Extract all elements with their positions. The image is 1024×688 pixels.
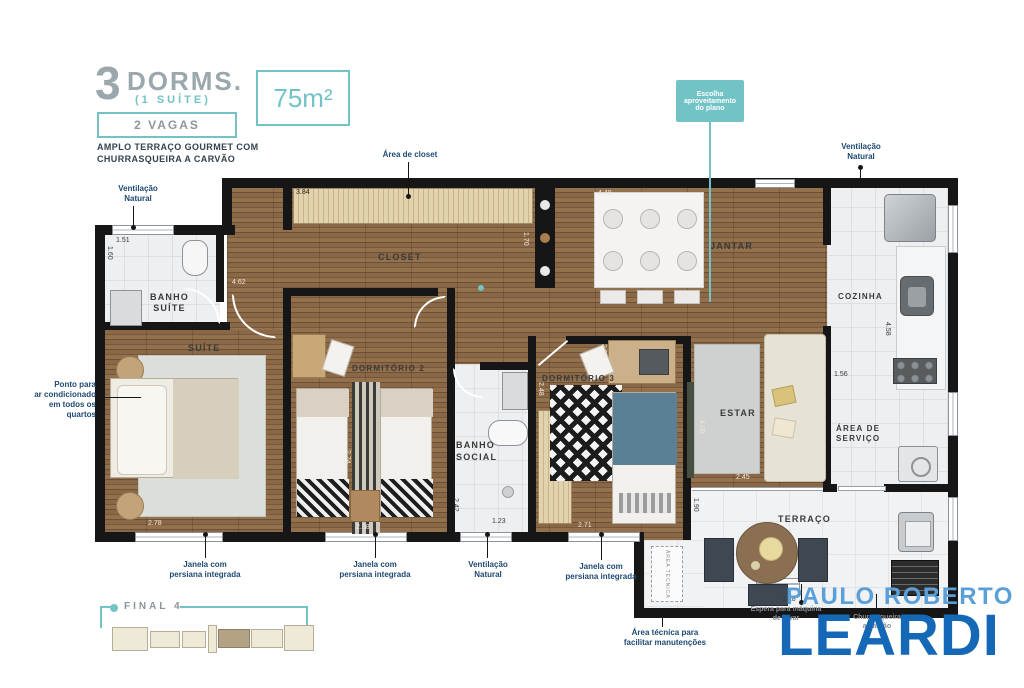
sofa-pillow-1 xyxy=(771,385,796,407)
ann-ventilacao-3-line xyxy=(487,537,488,558)
label-area-servico: ÁREA DE SERVIÇO xyxy=(836,424,880,445)
dim-banho-suite-h: 1.60 xyxy=(106,246,113,260)
ann-ventilacao-2-line xyxy=(860,170,861,184)
ann-ventilacao-1-l1: Ventilação xyxy=(118,184,158,193)
ann-janela-3: Janela com persiana integrada xyxy=(556,562,646,582)
terraco-table-plate xyxy=(759,537,783,561)
wall-banho-social-top xyxy=(480,362,533,370)
dim-dorm2-w: 2.38 xyxy=(356,524,370,531)
label-area-servico-l1: ÁREA DE xyxy=(836,424,880,433)
dorm3-bed-foot xyxy=(619,493,671,513)
window-right-3 xyxy=(948,497,958,541)
area-tecnica-box-label: ÁREA TÉCNICA xyxy=(664,550,670,599)
wall-jog xyxy=(222,178,232,235)
terraco-table-cup xyxy=(751,561,760,570)
header-subtitle-1: AMPLO TERRAÇO GOURMET COM xyxy=(97,142,259,152)
washing-machine-door xyxy=(911,457,931,477)
label-suite: SUÍTE xyxy=(188,343,221,353)
ann-area-closet-line xyxy=(408,162,409,196)
terraco-chair-left xyxy=(704,538,734,582)
suite-bed-pillows xyxy=(117,385,167,475)
brand-logo: PAULO ROBERTO LEARDI xyxy=(778,583,1018,675)
dorm2-bed-1-pillow xyxy=(297,389,349,417)
wall-dorm3-left xyxy=(528,336,536,540)
plate-1 xyxy=(603,209,623,229)
window-suite xyxy=(135,532,223,542)
keyplan-block-3 xyxy=(182,631,206,648)
header-subtitle-2: CHURRASQUEIRA A CARVÃO xyxy=(97,154,235,164)
terraco-chair-right xyxy=(798,538,828,582)
plate-6 xyxy=(677,251,697,271)
label-jantar: JANTAR xyxy=(710,241,753,251)
wall-left xyxy=(95,225,105,542)
ann-ventilacao-3-l1: Ventilação xyxy=(468,560,508,569)
window-banho-suite xyxy=(112,225,174,235)
ann-janela-3-l1: Janela com xyxy=(579,562,623,571)
ann-area-tecnica-l1: Área técnica para xyxy=(632,628,699,637)
area-label: 75m² xyxy=(273,83,332,114)
dining-chair-3 xyxy=(674,290,700,304)
label-dorm2: DORMITÓRIO 2 xyxy=(352,364,425,373)
vagas-label: 2 VAGAS xyxy=(134,118,200,132)
ann-area-closet-dot xyxy=(406,194,411,199)
dorm2-bed-2-pillow xyxy=(381,389,433,417)
terraco-table xyxy=(736,522,798,584)
dim-jantar-w: 4.48 xyxy=(598,190,612,197)
label-estar: ESTAR xyxy=(720,408,756,418)
suite-nightstand-bottom xyxy=(116,492,144,520)
keyplan-teal-right-h xyxy=(180,606,308,608)
ann-janela-3-line xyxy=(601,537,602,560)
tanque xyxy=(898,512,934,552)
dorm3-bed xyxy=(612,392,676,524)
dim-closet-h: 1.70 xyxy=(522,232,529,246)
closet-wardrobe xyxy=(293,188,533,224)
keyplan-block-6 xyxy=(284,625,314,651)
shaft-circle-1 xyxy=(540,200,550,210)
keyplan-unit-highlighted xyxy=(218,629,250,648)
callout-box: Escolha aproveitamento do plano xyxy=(676,80,744,122)
banho-suite-sink xyxy=(110,290,142,326)
dim-banho-suite-w: 1.51 xyxy=(116,237,130,244)
ann-ponto-ar-l1: Ponto para xyxy=(54,380,96,389)
ann-ponto-ar-l2: ar condicionado xyxy=(34,390,96,399)
window-right-1 xyxy=(948,205,958,253)
dim-banho-social-h: 2.42 xyxy=(452,498,459,512)
dim-suite-w: 2.78 xyxy=(148,520,162,527)
keyplan-building xyxy=(108,622,318,664)
dim-terraco-h: 1.90 xyxy=(692,498,699,512)
ann-janela-2: Janela com persiana integrada xyxy=(330,560,420,580)
ann-area-tecnica-l2: facilitar manutenções xyxy=(624,638,706,647)
header-big-number: 3 xyxy=(95,60,121,106)
ann-ponto-ar-l4: quartos xyxy=(67,410,96,419)
label-banho-social: BANHO SOCIAL xyxy=(456,440,497,463)
label-banho-social-l1: BANHO xyxy=(456,440,495,450)
keyplan-tower xyxy=(208,625,217,653)
ann-ventilacao-2-l1: Ventilação xyxy=(841,142,881,151)
keyplan-dot xyxy=(110,604,118,612)
ann-ventilacao-3-l2: Natural xyxy=(474,570,502,579)
dorm2-bed-1 xyxy=(296,388,348,516)
tv-rack xyxy=(687,382,694,478)
label-area-servico-l2: SERVIÇO xyxy=(836,434,880,443)
wall-banho-suite-right xyxy=(216,232,224,302)
wall-cozinha-left-upper xyxy=(823,183,831,245)
wall-top xyxy=(222,178,958,188)
dorm2-nightstand xyxy=(350,490,380,522)
ann-ventilacao-2: Ventilação Natural xyxy=(818,142,904,162)
kitchen-sink xyxy=(900,276,934,316)
door-servico-leaf xyxy=(838,486,886,491)
keyplan-block-1 xyxy=(112,627,148,651)
window-top-jantar xyxy=(755,179,795,188)
vagas-badge: 2 VAGAS xyxy=(97,112,237,138)
banho-social-sink xyxy=(502,372,528,410)
fridge xyxy=(884,194,936,242)
kitchen-sink-basin xyxy=(908,287,926,307)
dim-dorm3-w: 2.71 xyxy=(578,522,592,529)
plate-2 xyxy=(640,209,660,229)
dining-table xyxy=(594,192,704,288)
ann-ventilacao-2-l2: Natural xyxy=(847,152,875,161)
callout-line3: do plano xyxy=(695,105,724,112)
floorplan-page: 3 DORMS. (1 SUÍTE) 2 VAGAS AMPLO TERRAÇO… xyxy=(0,0,1024,688)
banho-suite-toilet xyxy=(182,240,208,276)
cooktop xyxy=(893,358,937,384)
banho-social-drain xyxy=(502,486,514,498)
suite-bed-blanket xyxy=(173,379,239,479)
ann-janela-1-l1: Janela com xyxy=(183,560,227,569)
window-dorm3 xyxy=(568,532,640,542)
dim-dorm3-h: 2.48 xyxy=(537,382,544,396)
shaft-circle-3 xyxy=(540,266,550,276)
label-banho-suite-l1: BANHO xyxy=(150,292,189,302)
label-cozinha: COZINHA xyxy=(838,292,883,301)
dorm2-bed-2-blanket xyxy=(381,479,433,517)
ann-area-closet-text: Área de closet xyxy=(383,150,438,159)
dim-closet-w: 4.62 xyxy=(232,279,246,286)
keyplan-teal-left-v xyxy=(100,606,102,628)
dim-cozinha-w: 1.56 xyxy=(834,371,848,378)
header-suite-label: (1 SUÍTE) xyxy=(135,94,211,106)
ann-janela-3-l2: persiana integrada xyxy=(565,572,636,581)
callout-line2: aproveitamento xyxy=(684,98,736,105)
plate-4 xyxy=(603,251,623,271)
dim-dorm3-top: 2.96 xyxy=(600,344,607,358)
ann-janela-2-l1: Janela com xyxy=(353,560,397,569)
dim-estar-w: 2.45 xyxy=(736,474,750,481)
ann-ponto-ar: Ponto para ar condicionado em todos os q… xyxy=(18,380,96,420)
ann-janela-1-line xyxy=(205,537,206,558)
shaft-circle-2 xyxy=(540,233,550,243)
ann-area-tecnica: Área técnica para facilitar manutenções xyxy=(610,628,720,648)
callout-leader-line xyxy=(709,122,711,302)
ann-janela-2-line xyxy=(375,537,376,558)
door-terraco-slider xyxy=(692,487,823,491)
wall-servico-divider-b xyxy=(884,484,953,492)
ann-ventilacao-1: Ventilação Natural xyxy=(95,184,181,204)
keyplan-block-5 xyxy=(251,629,283,648)
plate-3 xyxy=(677,209,697,229)
dim-estar-h: 4.09 xyxy=(698,420,705,434)
ann-ventilacao-1-dot xyxy=(131,225,136,230)
plate-5 xyxy=(640,251,660,271)
ann-janela-2-l2: persiana integrada xyxy=(339,570,410,579)
keyplan-block-2 xyxy=(150,631,180,648)
dim-banho-social-w: 1.23 xyxy=(492,518,506,525)
dorm3-laptop xyxy=(639,349,669,375)
ann-ventilacao-1-l2: Natural xyxy=(124,194,152,203)
area-badge: 75m² xyxy=(256,70,350,126)
dorm3-bed-blanket xyxy=(613,393,677,465)
label-closet: CLOSET xyxy=(378,252,422,262)
ann-area-tecnica-line xyxy=(662,613,663,627)
wall-suite-right xyxy=(283,288,291,540)
ann-ponto-ar-line xyxy=(101,397,141,398)
dorm3-desk xyxy=(608,340,676,384)
dorm2-bed-2 xyxy=(380,388,432,516)
ann-janela-1-l2: persiana integrada xyxy=(169,570,240,579)
dim-cozinha-h: 4.58 xyxy=(884,322,891,336)
washing-machine xyxy=(898,446,938,482)
ann-ponto-ar-l3: em todos os xyxy=(49,400,96,409)
dining-chair-2 xyxy=(637,290,663,304)
keyplan-label: FINAL 4 xyxy=(124,601,183,612)
dorm2-desk xyxy=(292,334,326,378)
area-tecnica-box: ÁREA TÉCNICA xyxy=(651,546,683,602)
wall-closet-stub xyxy=(283,183,292,230)
label-banho-social-l2: SOCIAL xyxy=(456,452,497,462)
ann-janela-1: Janela com persiana integrada xyxy=(160,560,250,580)
dim-closet-top: 3.84 xyxy=(296,189,310,196)
suite-bed xyxy=(110,378,238,478)
label-terraco: TERRAÇO xyxy=(778,514,831,524)
dining-chair-1 xyxy=(600,290,626,304)
dorm2-bed-1-blanket xyxy=(297,479,349,517)
dim-dorm2-h: 2.74 xyxy=(344,450,351,464)
wall-servico-divider-a xyxy=(823,484,837,492)
callout-line1: Escolha xyxy=(697,91,724,98)
door-marker-teal xyxy=(478,285,484,291)
tanque-basin xyxy=(905,521,931,547)
ann-area-closet: Área de closet xyxy=(365,150,455,160)
wall-dorm2-top xyxy=(283,288,438,296)
sofa xyxy=(764,334,826,482)
label-banho-suite: BANHO SUÍTE xyxy=(150,292,189,314)
sofa-pillow-2 xyxy=(772,417,797,439)
ann-ventilacao-3: Ventilação Natural xyxy=(445,560,531,580)
window-right-2 xyxy=(948,392,958,436)
label-banho-suite-l2: SUÍTE xyxy=(153,303,186,313)
label-dorm3: DORMITÓRIO 3 xyxy=(542,374,615,383)
header-dorms-label: DORMS. xyxy=(127,66,243,97)
brand-logo-bottom: LEARDI xyxy=(778,602,1000,669)
